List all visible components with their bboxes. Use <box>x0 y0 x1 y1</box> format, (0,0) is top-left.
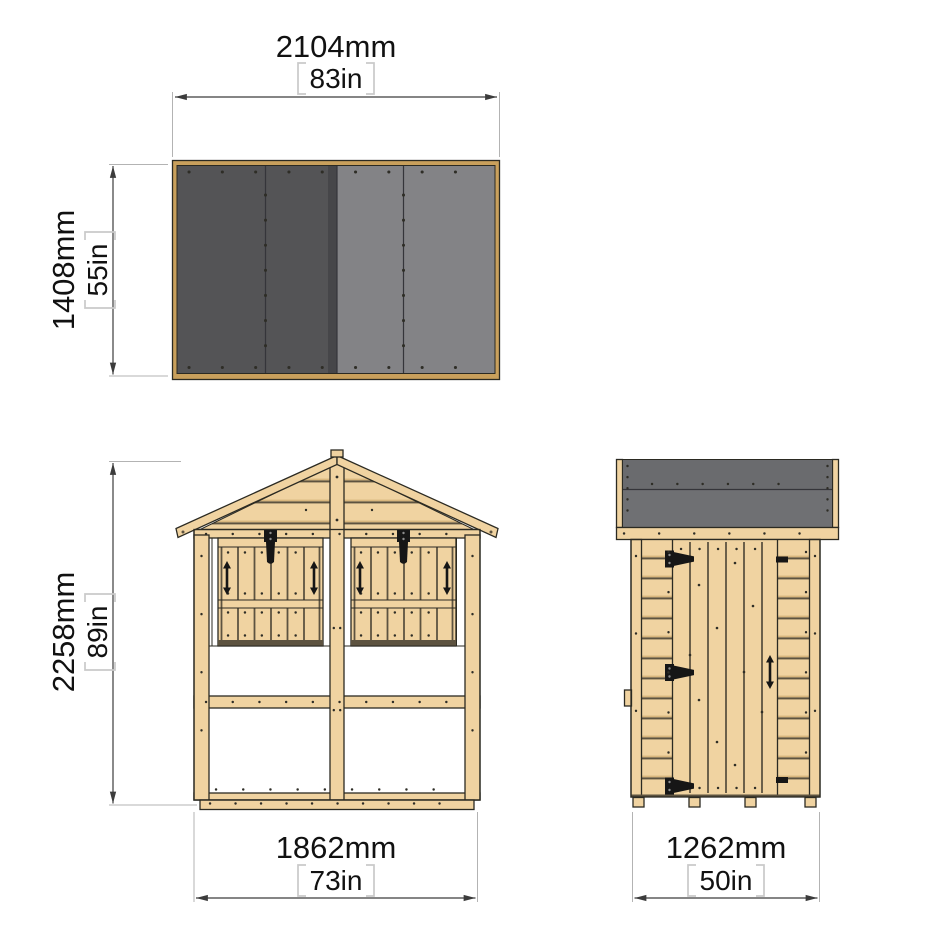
bracket-left <box>298 865 306 896</box>
foot-block <box>745 798 756 808</box>
front-width-dimension: 1862mm 73in <box>194 812 478 902</box>
bracket-right <box>85 594 115 602</box>
fascia-board <box>617 528 839 540</box>
shed-dimension-diagram: 2104mm 83in 1408mm 55in <box>0 0 928 928</box>
bracket-right <box>756 865 764 896</box>
side-width-in-label: 50in <box>700 865 753 896</box>
bracket-right <box>366 865 374 896</box>
bracket-left <box>85 662 115 670</box>
front-height-in-label: 89in <box>82 606 113 659</box>
door-latch-icon <box>776 557 788 563</box>
front-height-mm-label: 2258mm <box>46 572 81 693</box>
side-drawing <box>617 460 839 808</box>
bracket-left <box>85 300 115 308</box>
door-latch-icon <box>776 777 788 783</box>
bracket-left <box>298 63 306 94</box>
left-shutter-window <box>218 529 323 646</box>
roof-plan-width-mm-label: 2104mm <box>276 29 397 64</box>
roof-felt-lower <box>623 490 833 528</box>
front-width-mm-label: 1862mm <box>276 830 397 865</box>
side-elevation-view: 1262mm 50in <box>617 460 839 903</box>
roof-plan-drawing <box>173 161 500 380</box>
bracket-right <box>366 63 374 94</box>
side-door <box>665 540 788 796</box>
side-width-dimension: 1262mm 50in <box>633 812 820 902</box>
bracket-left <box>688 865 696 896</box>
front-elevation-view: 2258mm 89in 1862mm 73in <box>46 450 498 902</box>
foot-block <box>633 798 644 808</box>
corner-post-right <box>465 535 480 800</box>
apex-cap <box>331 450 343 457</box>
foot-block <box>689 798 700 808</box>
side-corner-post-left <box>631 540 642 798</box>
diagram-canvas: 2104mm 83in 1408mm 55in <box>0 0 928 928</box>
front-height-dimension: 2258mm 89in <box>46 462 197 806</box>
roof-plan-depth-mm-label: 1408mm <box>46 210 81 331</box>
roof-plan-depth-dimension: 1408mm 55in <box>46 165 168 377</box>
roof-ridge-shadow <box>328 166 337 374</box>
roof-plan-width-in-label: 83in <box>310 63 363 94</box>
roof-felt-panel-right <box>337 166 496 374</box>
roof-plan-depth-in-label: 55in <box>82 244 113 297</box>
bargeboard-edge-right <box>833 460 839 528</box>
corner-post-left <box>194 535 209 800</box>
bracket-right <box>85 232 115 240</box>
side-wall-planking-right <box>778 540 810 798</box>
front-width-in-label: 73in <box>310 865 363 896</box>
right-shutter-window <box>351 529 456 646</box>
centre-post <box>330 462 344 800</box>
side-width-mm-label: 1262mm <box>666 830 787 865</box>
base-skid <box>200 800 474 810</box>
foot-block <box>805 798 816 808</box>
bargeboard-edge-left <box>617 460 623 528</box>
side-corner-post-right <box>810 540 821 798</box>
roof-felt-panel-left <box>177 166 337 374</box>
roof-plan-width-dimension: 2104mm 83in <box>173 29 500 157</box>
front-drawing <box>176 450 498 810</box>
roof-plan-view: 2104mm 83in 1408mm 55in <box>46 29 500 380</box>
